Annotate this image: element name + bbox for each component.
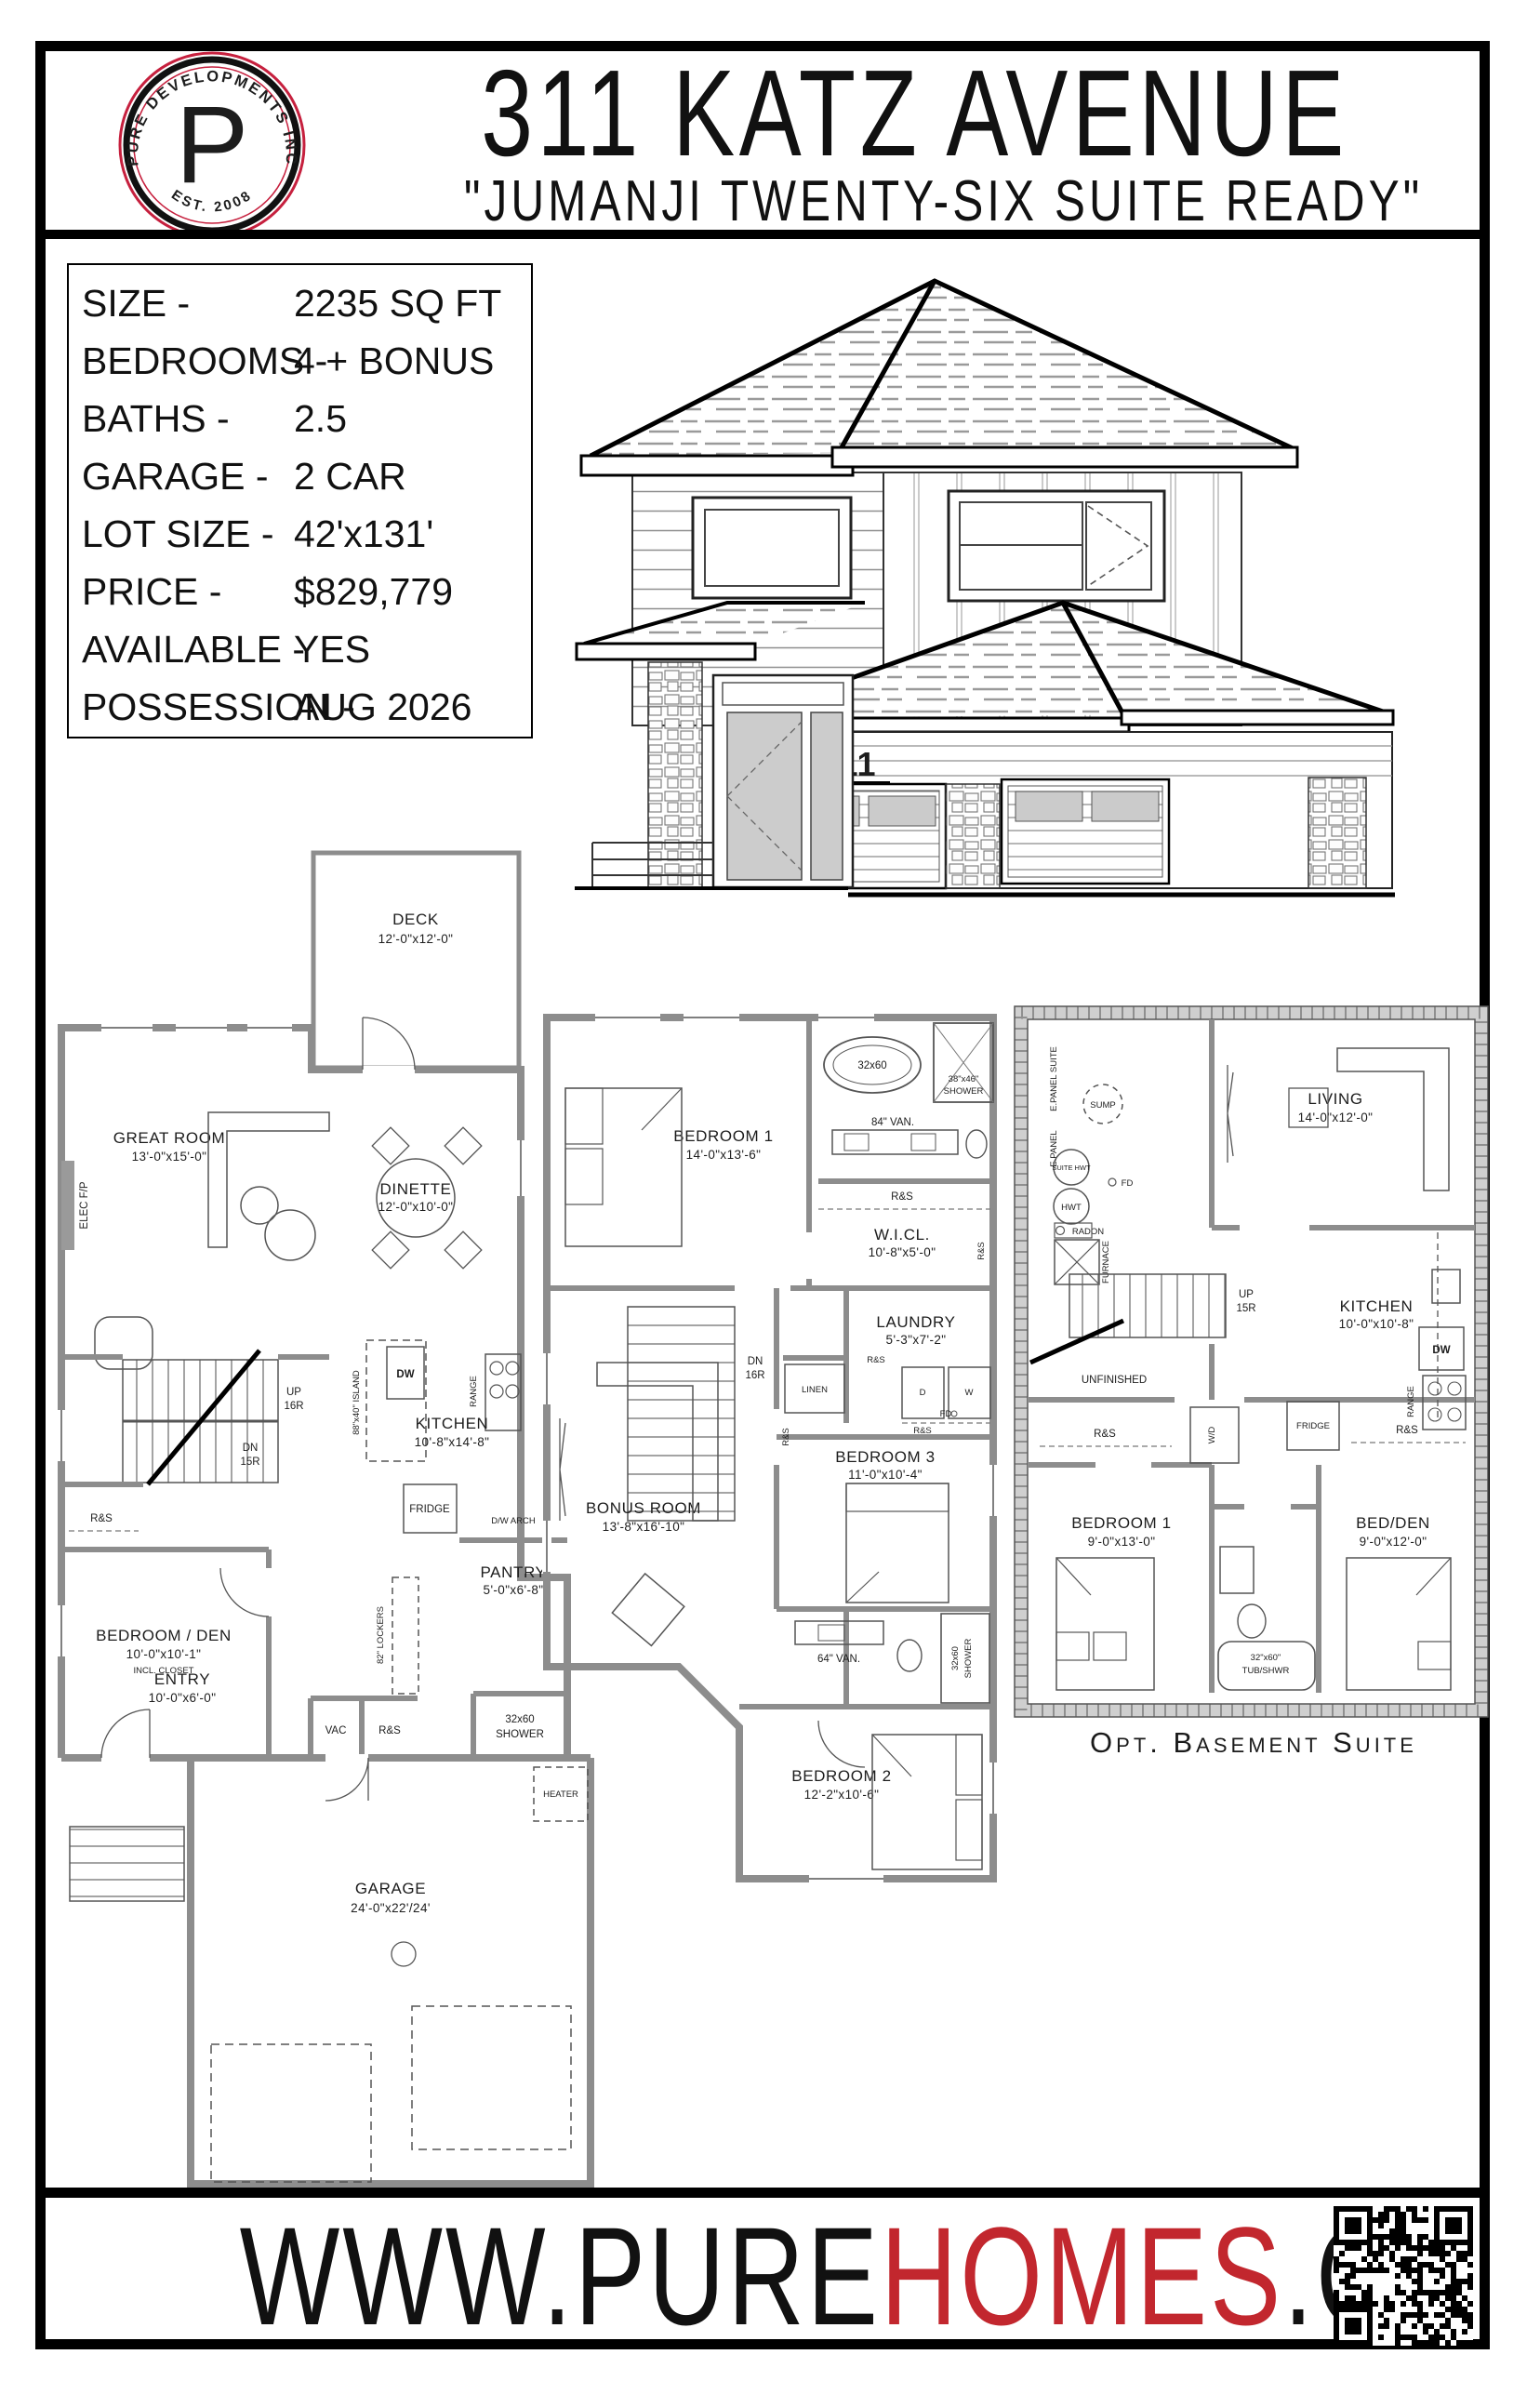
label-living-dims: 14'-0"x12'-0": [1298, 1111, 1374, 1124]
label-tub-size: 32"x60": [1251, 1653, 1281, 1663]
spec-value: 4 + BONUS: [294, 339, 494, 383]
page-title-wrap: 311 KATZ AVENUE: [344, 52, 1441, 175]
label-fd: FD: [1122, 1178, 1134, 1189]
label-washer: W: [965, 1388, 974, 1398]
label-garage-dims: 24'-0"x22'/24': [351, 1901, 431, 1915]
upper-bedroom2: BEDROOM 2 12'-2"x10'-6": [791, 1721, 982, 1869]
upper-right-window: [949, 491, 1164, 601]
door-sidelight: [811, 712, 843, 880]
stone-column: [648, 662, 702, 887]
spec-label: PRICE -: [82, 570, 221, 614]
label-up: UP: [286, 1387, 301, 1398]
label-kitchen-bsmt-dims: 10'-0"x10'-8": [1339, 1317, 1414, 1331]
label-rs: R&S: [891, 1191, 913, 1203]
upper-left-window: [693, 498, 851, 598]
label-wd: W/D: [1207, 1427, 1217, 1444]
mechanical-area: E.PANEL SUITE E.PANEL SUMP SUITE HWT HWT…: [1049, 1046, 1133, 1284]
spec-value: 2235 SQ FT: [294, 282, 501, 326]
toilet: [897, 1640, 922, 1671]
lockers-bench: [392, 1577, 418, 1694]
garage-door-dashed: [211, 2044, 371, 2182]
spec-row-possession: POSSESSION -AUG 2026: [82, 676, 519, 734]
spec-row-baths: BATHS -2.5: [82, 388, 519, 446]
upper-ensuite: 32x60 38"x46" SHOWER 84" VAN. R&S W.I.CL…: [818, 1023, 993, 1260]
stone-pier-right: [1308, 778, 1366, 888]
label-shower: SHOWER: [963, 1638, 974, 1678]
main-outer-walls: [61, 1028, 591, 2184]
label-laundry-dims: 5'-3"x7'-2": [886, 1333, 947, 1347]
toilet: [1238, 1604, 1266, 1638]
label-van64: 64" VAN.: [817, 1654, 860, 1665]
label-suite-hwt: SUITE HWT: [1052, 1164, 1091, 1172]
label-bedroom3-dims: 11'-0"x10'-4": [848, 1468, 923, 1482]
label-bsmt-bedroom1-dims: 9'-0"x13'-0": [1088, 1535, 1156, 1549]
upper-laundry: LAUNDRY 5'-3"x7'-2" LINEN R&S D W FD R&S…: [781, 1313, 990, 1446]
qr-code: [1334, 2206, 1473, 2346]
label-epanel-suite: E.PANEL SUITE: [1049, 1046, 1059, 1111]
label-kitchen: KITCHEN: [416, 1415, 489, 1432]
label-tub-size: 32x60: [857, 1060, 886, 1071]
label-deck: DECK: [392, 911, 439, 928]
logo-letter: P: [176, 84, 249, 206]
label-dinette: DINETTE: [380, 1180, 452, 1198]
label-wicl-dims: 10'-8"x5'-0": [869, 1245, 936, 1259]
basement-interior-walls: [1028, 1019, 1475, 1693]
label-bedroom2: BEDROOM 2: [791, 1767, 891, 1785]
label-wicl: W.I.CL.: [874, 1226, 930, 1244]
label-dw: DW: [396, 1369, 414, 1380]
spec-value: 2 CAR: [294, 455, 406, 499]
floorplan-upper: BEDROOM 1 14'-0"x13'-6" 32x60 38"x46" SH…: [539, 1000, 1014, 1893]
page-title: 311 KATZ AVENUE: [481, 52, 1348, 175]
spec-value: AUG 2026: [294, 685, 471, 729]
footer-url-prefix: WWW.PURE: [240, 2198, 881, 2354]
label-sump: SUMP: [1090, 1100, 1115, 1111]
spec-value: 42'x131': [294, 512, 433, 556]
footer-url-accent: HOMES: [881, 2198, 1283, 2354]
garage: HEATER GARAGE 24'-0"x22'/24': [70, 1767, 588, 2182]
spec-label: BEDROOMS -: [82, 339, 327, 383]
label-rs: R&S: [781, 1428, 791, 1446]
label-pantry-dims: 5'-0"x6'-8": [484, 1583, 544, 1597]
label-radon: RADON: [1072, 1227, 1104, 1237]
label-bedroom-den-dims: 10'-0"x10'-1": [126, 1647, 202, 1661]
label-pantry: PANTRY: [481, 1563, 547, 1581]
pure-developments-logo: PURE DEVELOPMENTS INC EST. 2008 P: [108, 47, 316, 244]
label-dw-arch: D/W ARCH: [491, 1516, 536, 1526]
upper-bedroom1: BEDROOM 1 14'-0"x13'-6": [565, 1088, 774, 1246]
label-rs: R&S: [1396, 1425, 1418, 1436]
label-bedroom2-dims: 12'-2"x10'-6": [804, 1788, 880, 1802]
upper-bedroom3: BEDROOM 3 11'-0"x10'-4": [835, 1448, 949, 1603]
label-great-room-dims: 13'-0"x15'-0": [132, 1150, 207, 1164]
exterior-stairs: [70, 1827, 184, 1901]
tv-console: [1228, 1065, 1233, 1163]
fireplace: [61, 1161, 74, 1250]
spec-label: GARAGE -: [82, 455, 268, 499]
label-van84: 84" VAN.: [871, 1117, 914, 1128]
label-fd: FD: [940, 1409, 952, 1419]
floorplan-basement: E.PANEL SUITE E.PANEL SUMP SUITE HWT HWT…: [1012, 1000, 1495, 1753]
basement-caption: Opt. Basement Suite: [1012, 1726, 1495, 1760]
basement-closets: R&S W/D FRIDGE R&S: [1040, 1402, 1466, 1463]
label-bsmt-bedroom1: BEDROOM 1: [1071, 1514, 1171, 1532]
label-dw: DW: [1432, 1345, 1450, 1356]
spec-label: LOT SIZE -: [82, 512, 274, 556]
label-rs: R&S: [913, 1426, 932, 1436]
garage-door-dashed: [412, 2006, 571, 2149]
label-bedden: BED/DEN: [1356, 1514, 1430, 1532]
label-range: RANGE: [1406, 1386, 1416, 1417]
label-dn: DN: [748, 1356, 763, 1367]
bedroom-den: BEDROOM / DEN 10'-0"x10'-1" INCL. CLOSET: [96, 1568, 273, 1676]
page-subtitle-wrap: "JUMANJI TWENTY-SIX SUITE READY": [344, 173, 1441, 231]
upper-stairs: DN 16R: [628, 1307, 765, 1521]
label-hwt: HWT: [1061, 1203, 1082, 1213]
label-deck-dims: 12'-0"x12'-0": [378, 932, 454, 946]
sofa: [208, 1112, 329, 1247]
window-gaps: [57, 1023, 525, 1656]
footer-url: WWW.PUREHOMES.CA: [46, 2206, 1490, 2346]
chair: [612, 1574, 684, 1645]
bed: [1056, 1558, 1154, 1690]
label-fridge: FRIDGE: [1296, 1421, 1330, 1431]
bed: [872, 1735, 982, 1869]
label-shower: SHOWER: [944, 1086, 984, 1097]
basement-bath: 32"x60" TUB/SHWR: [1218, 1547, 1315, 1690]
label-shower-size: 32x60: [950, 1646, 961, 1670]
label-entry-dims: 10'-0"x6'-0": [149, 1691, 217, 1705]
basement-bedden: BED/DEN 9'-0"x12'-0": [1347, 1514, 1451, 1690]
label-bonus: BONUS ROOM: [586, 1499, 701, 1517]
bed: [846, 1483, 949, 1603]
spec-row-bedrooms: BEDROOMS -4 + BONUS: [82, 330, 519, 388]
sink: [1432, 1270, 1460, 1303]
bed: [565, 1088, 682, 1246]
spec-row-size: SIZE -2235 SQ FT: [82, 273, 519, 330]
kitchen: DW 88"x40" ISLAND RANGE KITCHEN 10'-8"x1…: [352, 1340, 536, 1533]
label-range: RANGE: [469, 1376, 479, 1407]
bed: [1347, 1558, 1451, 1690]
label-up: UP: [1239, 1289, 1254, 1300]
spec-label: AVAILABLE -: [82, 628, 305, 672]
rs-closet: R&S: [69, 1513, 139, 1531]
basement-living: LIVING 14'-0"x12'-0": [1228, 1048, 1449, 1190]
header-divider: [46, 230, 1490, 239]
page-subtitle: "JUMANJI TWENTY-SIX SUITE READY": [464, 173, 1423, 231]
label-kitchen-bsmt: KITCHEN: [1340, 1297, 1414, 1315]
transom-window: [723, 683, 843, 705]
sink: [1220, 1547, 1254, 1593]
pantry-lockers: PANTRY 5'-0"x6'-8" 82" LOCKERS: [376, 1563, 547, 1694]
label-entry: ENTRY: [154, 1670, 210, 1688]
label-bedroom3: BEDROOM 3: [835, 1448, 935, 1466]
floor-drain: [392, 1942, 416, 1966]
label-island: 88"x40" ISLAND: [352, 1370, 362, 1435]
label-vac: VAC: [325, 1725, 347, 1736]
label-bedden-dims: 9'-0"x12'-0": [1360, 1535, 1427, 1549]
label-rs: R&S: [378, 1725, 401, 1736]
spec-label: SIZE -: [82, 282, 190, 326]
spec-table: SIZE -2235 SQ FT BEDROOMS -4 + BONUS BAT…: [67, 263, 533, 738]
deck: DECK 12'-0"x12'-0": [313, 853, 519, 1068]
dinette: DINETTE 12'-0"x10'-0": [372, 1127, 482, 1269]
label-garage: GARAGE: [355, 1880, 426, 1897]
label-kitchen-dims: 10'-8"x14'-8": [415, 1435, 490, 1449]
label-shower38: 38"x46": [949, 1074, 979, 1084]
label-fridge: FRIDGE: [409, 1504, 450, 1515]
label-elec-fp: ELEC F/P: [79, 1181, 90, 1229]
label-dn-risers: 16R: [745, 1370, 764, 1381]
spec-row-price: PRICE -$829,779: [82, 561, 519, 619]
spec-row-garage: GARAGE -2 CAR: [82, 446, 519, 503]
front-door-glass: [727, 712, 802, 880]
spec-value: YES: [294, 628, 370, 672]
label-bedroom1: BEDROOM 1: [673, 1127, 773, 1145]
main-stairs: UP 16R DN 15R: [123, 1350, 304, 1484]
label-up-risers: 15R: [1236, 1303, 1255, 1314]
basement-bedroom1: BEDROOM 1 9'-0"x13'-0": [1056, 1514, 1172, 1690]
label-rs: R&S: [867, 1355, 885, 1365]
garage-door-lite: [1092, 791, 1159, 821]
stone-pier-center: [946, 784, 1000, 888]
label-linen: LINEN: [802, 1385, 828, 1395]
footer-divider: [46, 2188, 1490, 2198]
label-dinette-dims: 12'-0"x10'-0": [378, 1200, 454, 1214]
label-living: LIVING: [1308, 1090, 1362, 1108]
upper-roof: [581, 281, 1297, 475]
toilet: [966, 1130, 987, 1158]
spec-row-available: AVAILABLE -YES: [82, 619, 519, 676]
tv-console: [560, 1418, 565, 1521]
label-unfinished: UNFINISHED: [1082, 1375, 1147, 1386]
great-room: ELEC F/P GREAT ROOM 13'-0"x15'-0": [61, 1112, 329, 1369]
label-dn-risers: 15R: [240, 1457, 259, 1468]
spec-label: BATHS -: [82, 397, 230, 441]
label-shower-size: 32x60: [505, 1714, 534, 1725]
upper-bath: 64" VAN. 32x60 SHOWER: [795, 1614, 989, 1703]
label-rs: R&S: [90, 1513, 113, 1524]
spec-row-lot-size: LOT SIZE -42'x131': [82, 503, 519, 561]
label-rs: R&S: [976, 1242, 987, 1260]
label-up-risers: 16R: [284, 1401, 303, 1412]
label-bonus-dims: 13'-8"x16'-10": [603, 1520, 685, 1534]
label-bedroom-den: BEDROOM / DEN: [96, 1627, 232, 1644]
garage-door-lite: [1016, 791, 1082, 821]
label-bedroom1-dims: 14'-0"x13'-6": [686, 1148, 762, 1162]
label-tub-shwr: TUB/SHWR: [1242, 1666, 1290, 1676]
garage-door-right: [1002, 779, 1169, 884]
label-shower: SHOWER: [496, 1729, 544, 1740]
basement-stairs: UP 15R UNFINISHED: [1030, 1274, 1256, 1386]
front-elevation-drawing: 311: [569, 259, 1406, 900]
label-laundry: LAUNDRY: [876, 1313, 955, 1331]
floorplan-main: DECK 12'-0"x12'-0" ELEC F/P GREAT ROOM 1…: [50, 833, 599, 2196]
label-dn: DN: [243, 1443, 259, 1454]
spec-value: $829,779: [294, 570, 453, 614]
spec-value: 2.5: [294, 397, 347, 441]
label-dryer: D: [920, 1388, 926, 1398]
label-lockers: 82" LOCKERS: [376, 1606, 386, 1664]
label-rs: R&S: [1094, 1429, 1116, 1440]
garage-door-lite: [869, 796, 936, 826]
flyer-page: { "header": { "logo": { "ring_text": "PU…: [0, 0, 1540, 2381]
